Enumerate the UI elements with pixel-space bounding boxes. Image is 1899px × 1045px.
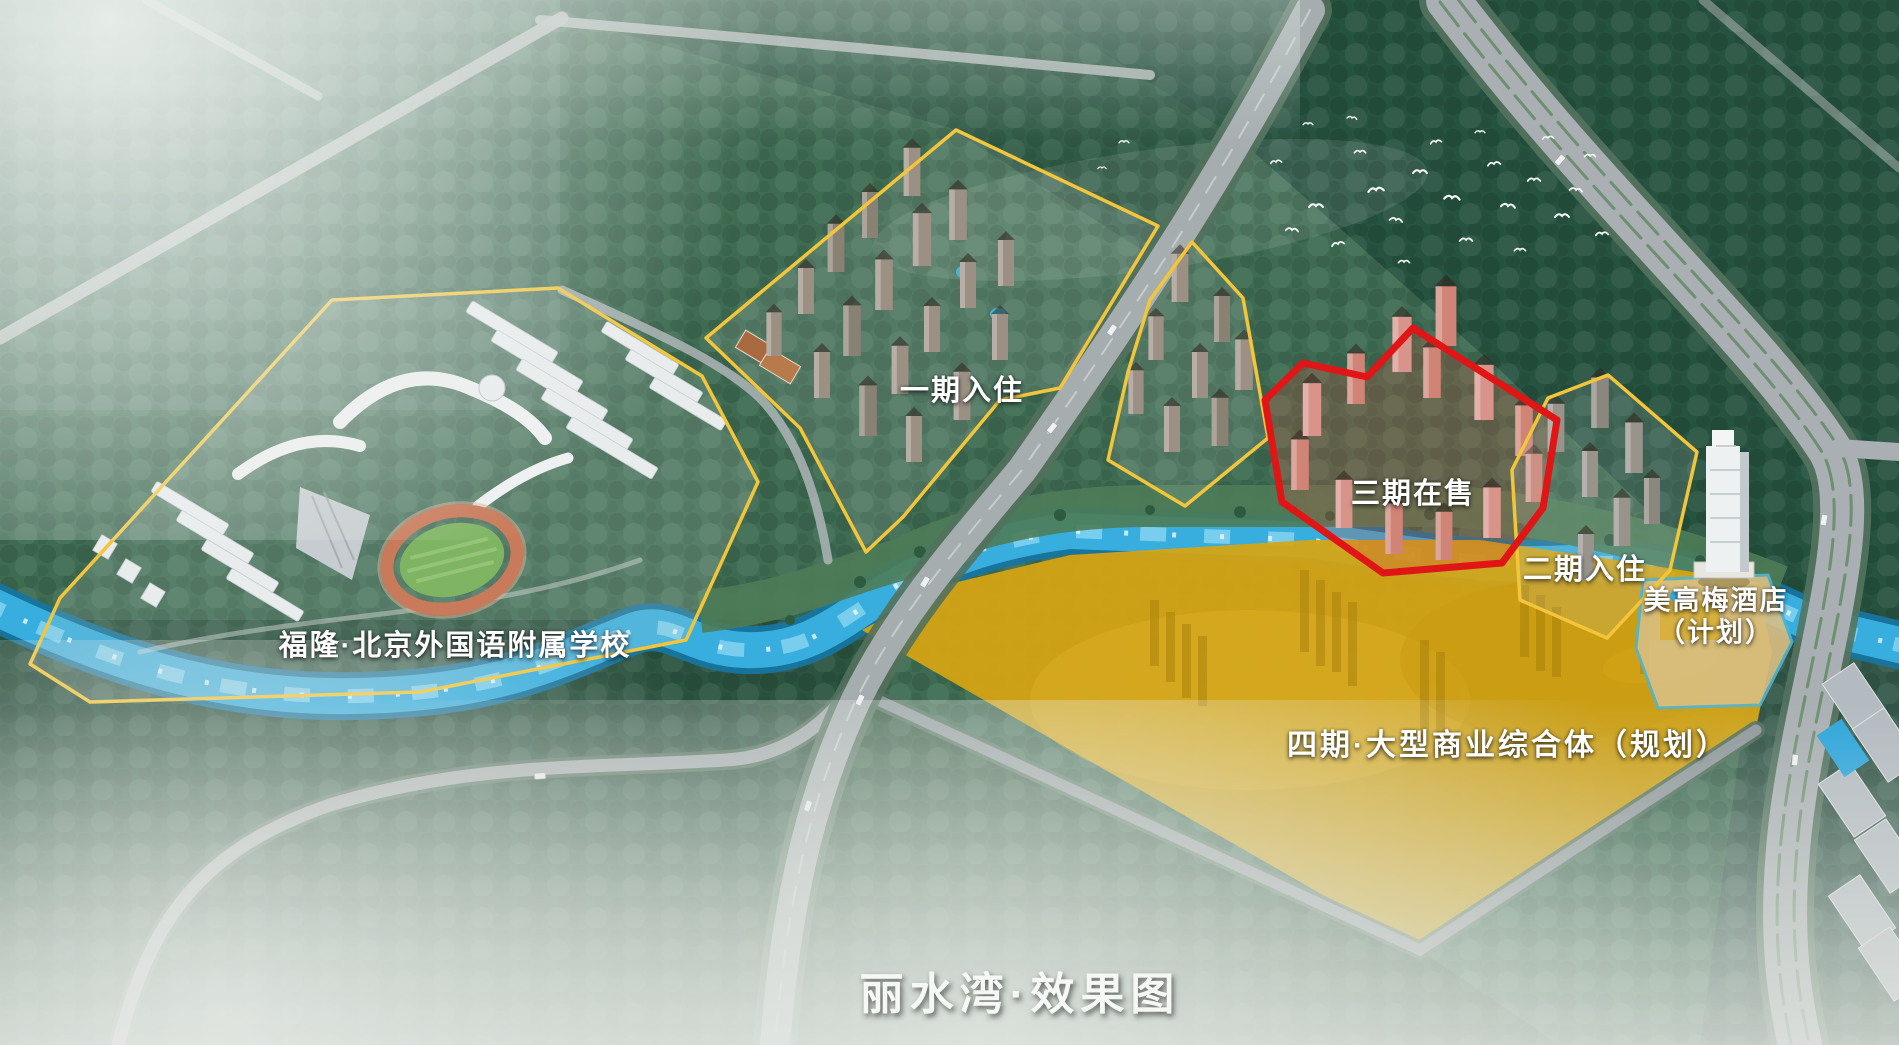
aerial-scene [0,0,1899,1045]
zone-label-phase3: 三期在售 [1351,470,1475,512]
site-plan-rendering: 福隆·北京外国语附属学校 一期入住 三期在售 二期入住 美高梅酒店 （计划） 四… [0,0,1899,1045]
hotel-label-line2: （计划） [1644,617,1789,649]
zone-label-school: 福隆·北京外国语附属学校 [279,622,632,664]
zone-label-phase4: 四期·大型商业综合体（规划） [1287,720,1729,764]
zone-label-hotel: 美高梅酒店 （计划） [1644,585,1789,650]
zone-label-phase1: 一期入住 [900,367,1024,409]
zone-label-phase2: 二期入住 [1523,546,1647,588]
page-title: 丽水湾·效果图 [860,958,1181,1022]
hotel-label-line1: 美高梅酒店 [1644,585,1789,617]
